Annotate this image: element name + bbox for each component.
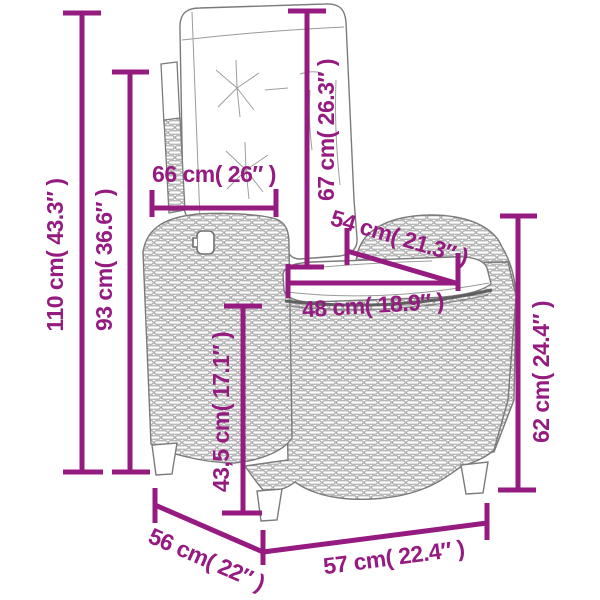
chair-leg-back-left — [152, 443, 177, 475]
diagram-canvas: 110 cm( 43.3″ ) 93 cm( 36.6″ ) 66 cm( 26… — [0, 0, 600, 600]
chair-leg-front-left — [257, 489, 282, 521]
dimension-label-total-height: 110 cm( 43.3″ ) — [42, 178, 68, 331]
dimension-label-seat-height: 43,5 cm( 17.1″ ) — [208, 332, 234, 492]
dimension-label-base-depth: 56 cm( 22″ ) — [145, 523, 269, 596]
chair-leg-front-right — [461, 462, 488, 494]
dimension-label-back-cushion-length: 67 cm( 26.3″ ) — [313, 59, 339, 201]
dimension-label-armrest-height: 62 cm( 24.4″ ) — [528, 301, 554, 443]
recline-strap-top — [161, 62, 180, 124]
dimension-backrest-height: 93 cm( 36.6″ ) — [91, 72, 150, 472]
dimension-base-width: 57 cm( 22.4″ ) — [263, 503, 487, 579]
dimension-diagram: 110 cm( 43.3″ ) 93 cm( 36.6″ ) 66 cm( 26… — [0, 0, 600, 600]
dimension-label-backrest-width: 66 cm( 26″ ) — [152, 161, 276, 187]
dimension-base-depth: 56 cm( 22″ ) — [145, 488, 269, 596]
dimension-label-backrest-height: 93 cm( 36.6″ ) — [91, 189, 117, 331]
